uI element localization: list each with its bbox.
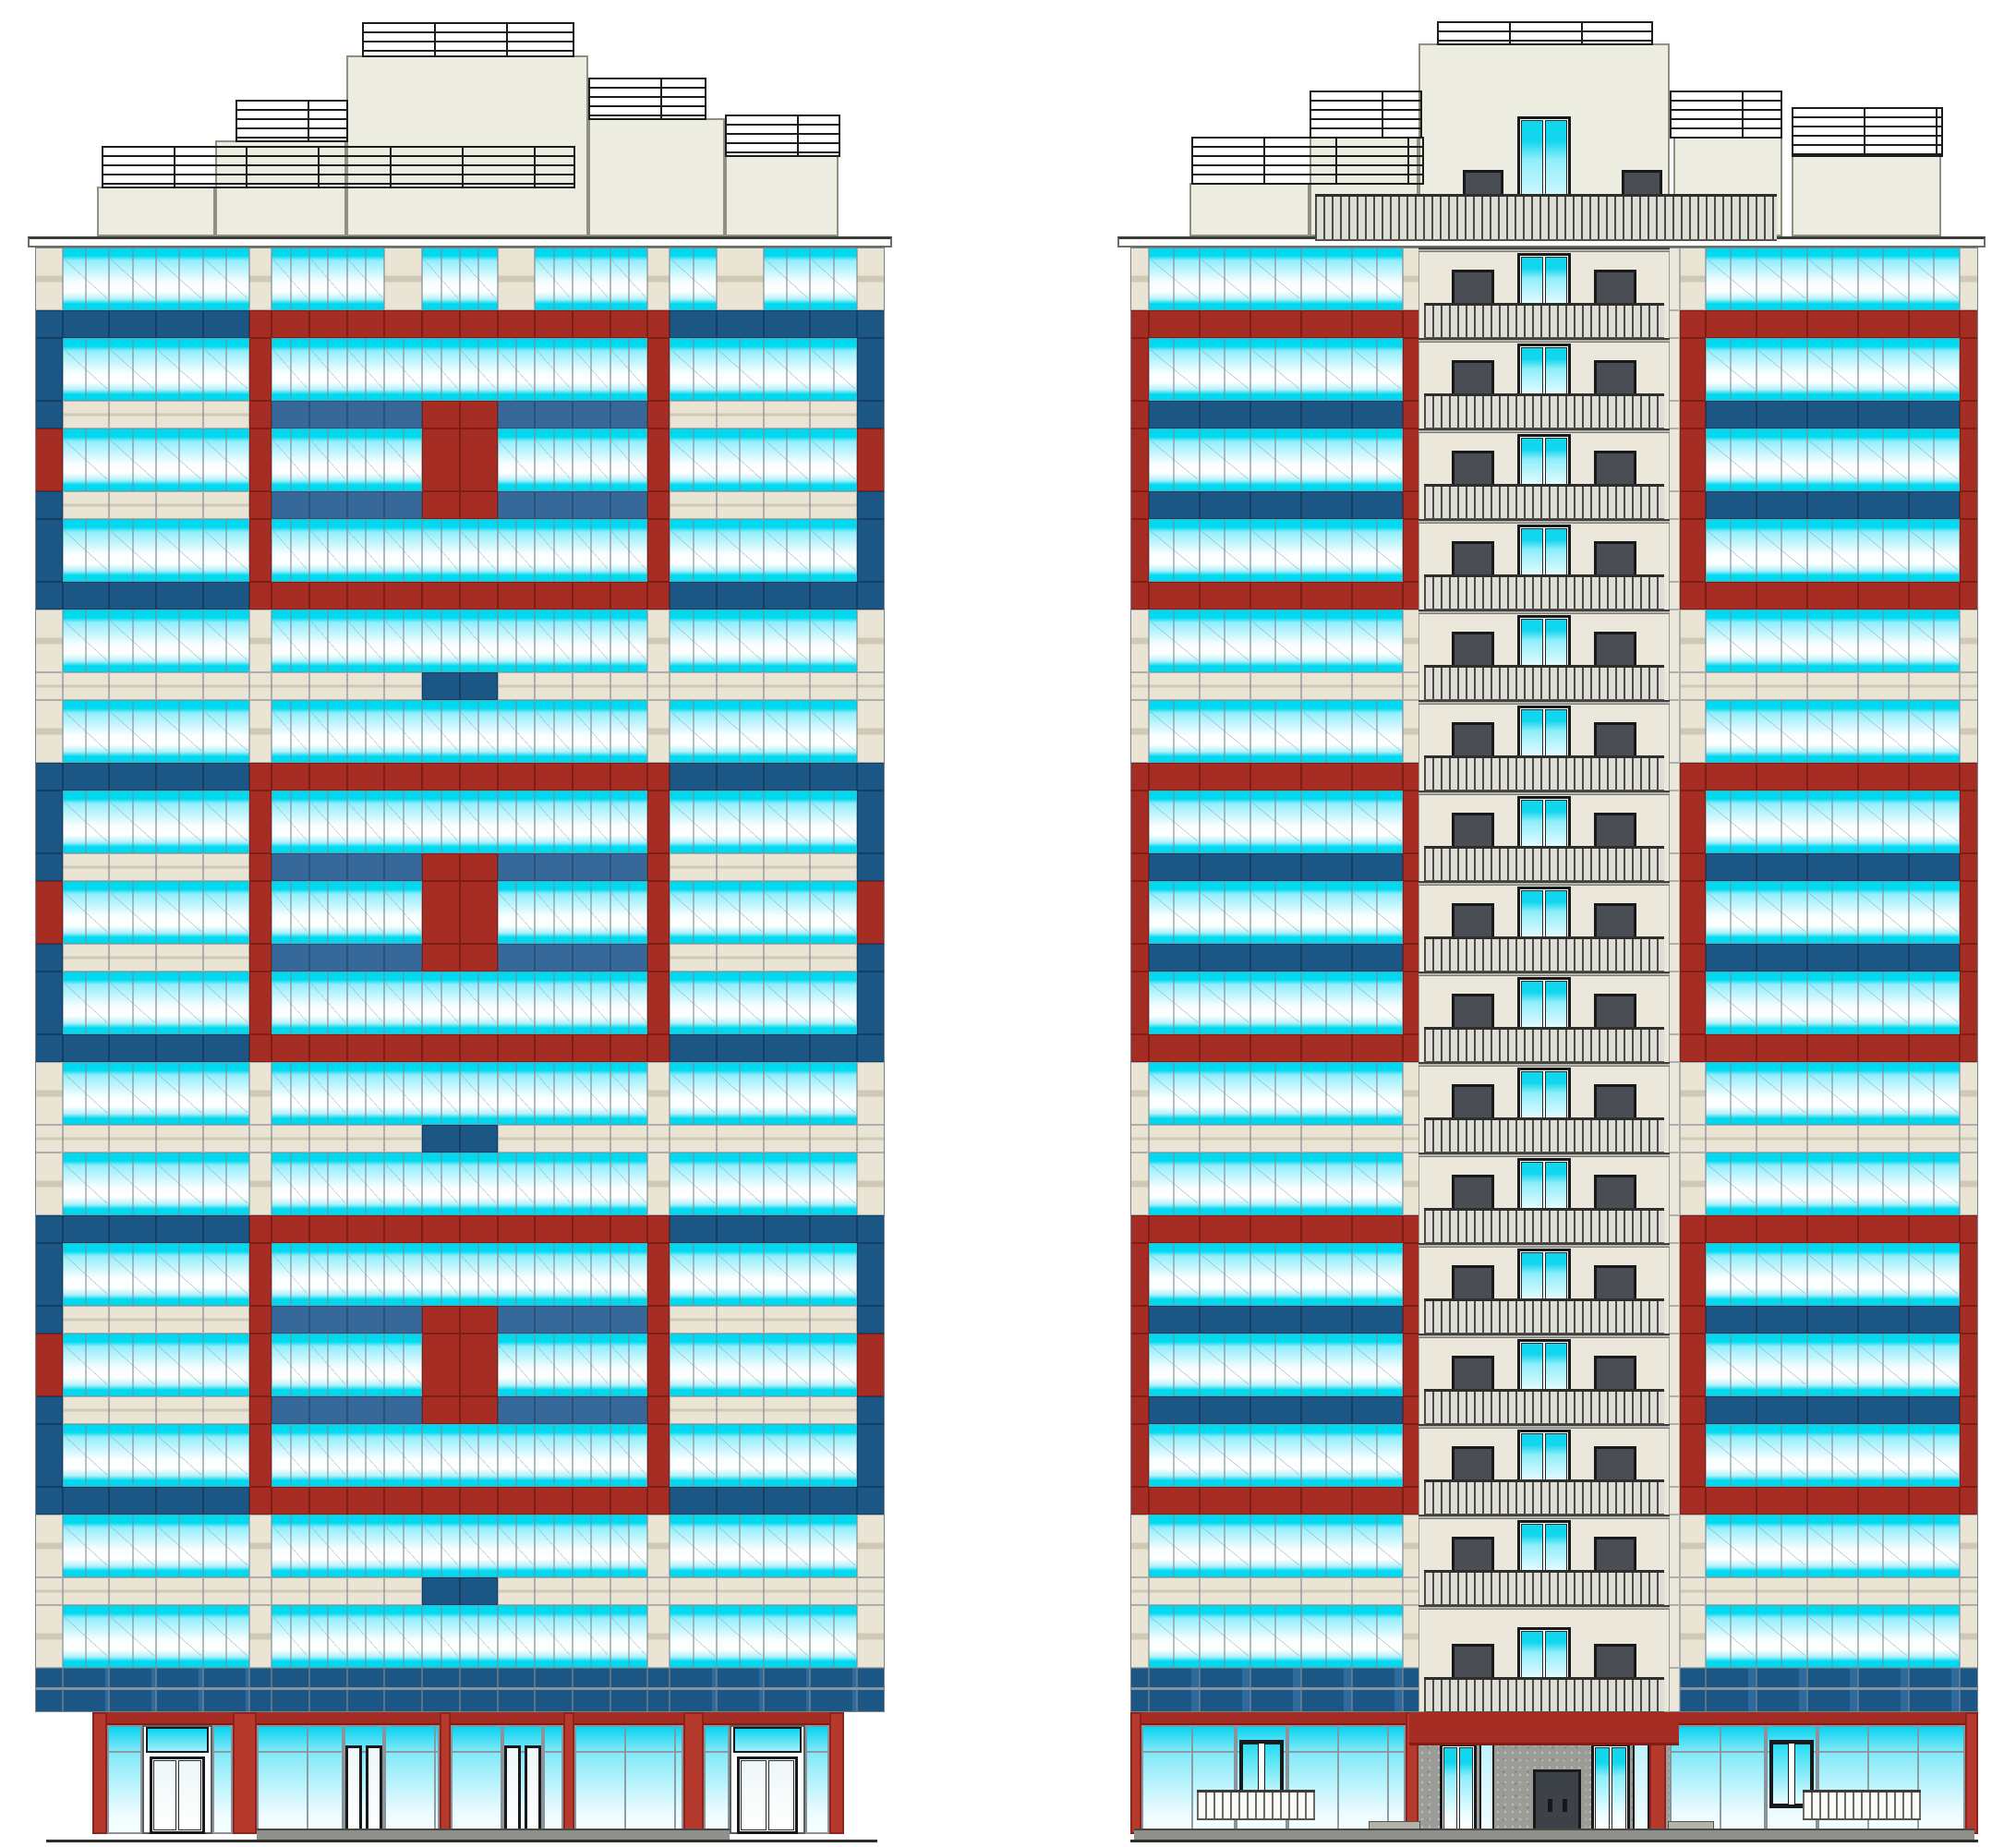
window-cell xyxy=(764,1243,811,1306)
cream-panel xyxy=(1250,1125,1301,1153)
navy-panel xyxy=(1756,944,1807,972)
red-panel xyxy=(647,881,670,944)
window-cell xyxy=(1756,1424,1807,1487)
window-cell xyxy=(1858,972,1909,1034)
window-cell xyxy=(1858,1062,1909,1125)
window-cell xyxy=(460,1605,498,1668)
cream-panel xyxy=(1680,1062,1706,1125)
window-cell xyxy=(764,1062,811,1125)
floor-slab xyxy=(1418,1424,1670,1429)
glazed-entrance-door xyxy=(1591,1744,1630,1834)
window-cell xyxy=(109,972,156,1034)
cream-panel xyxy=(63,1396,110,1424)
window-cell xyxy=(573,1605,610,1668)
window-cell xyxy=(670,1334,717,1396)
window-cell xyxy=(610,429,648,491)
cream-panel xyxy=(1149,1577,1200,1605)
window-cell xyxy=(63,1334,110,1396)
window-cell xyxy=(1250,881,1301,944)
facade-spandrel-row xyxy=(35,944,885,972)
balcony-railing xyxy=(1424,1479,1664,1515)
window-cell xyxy=(610,1153,648,1215)
navy-panel xyxy=(63,1034,110,1062)
window-cell xyxy=(764,881,811,944)
balcony-unit xyxy=(1418,791,1670,881)
cream-panel xyxy=(1807,672,1858,700)
cream-panel xyxy=(203,401,250,429)
window-cell xyxy=(272,1515,309,1577)
glazed-entrance-door xyxy=(1440,1744,1477,1834)
cream-panel xyxy=(63,853,110,881)
blue-spandrel xyxy=(535,1396,573,1424)
window-cell xyxy=(156,1153,203,1215)
cream-panel xyxy=(63,491,110,519)
window-cell xyxy=(156,1424,203,1487)
red-panel xyxy=(249,310,272,338)
window-cell xyxy=(717,1424,764,1487)
red-panel xyxy=(498,1034,536,1062)
window-cell xyxy=(498,610,536,672)
red-panel xyxy=(1807,1034,1858,1062)
window-cell xyxy=(109,1062,156,1125)
window-cell xyxy=(63,610,110,672)
window-cell xyxy=(1807,247,1858,310)
navy-panel xyxy=(156,1034,203,1062)
window-cell xyxy=(810,1243,857,1306)
navy-panel xyxy=(109,1034,156,1062)
window-cell xyxy=(1200,791,1250,853)
red-panel xyxy=(422,429,460,491)
window-cell xyxy=(1352,1424,1403,1487)
window-cell xyxy=(109,1424,156,1487)
window-cell xyxy=(1149,1062,1200,1125)
balcony-unit xyxy=(1418,610,1670,700)
entrance-transom xyxy=(146,1727,209,1753)
window-cell xyxy=(384,1605,422,1668)
facade-spandrel-row xyxy=(35,1577,885,1605)
red-panel xyxy=(1756,1215,1807,1243)
cream-panel xyxy=(1909,1125,1960,1153)
cream-panel xyxy=(670,1125,717,1153)
storefront-red-band xyxy=(1670,1712,1766,1725)
cream-panel xyxy=(203,1396,250,1424)
red-panel xyxy=(647,429,670,491)
window-cell xyxy=(1149,610,1200,672)
cream-panel xyxy=(35,1062,63,1125)
cream-panel xyxy=(249,1605,272,1668)
storefront-glass xyxy=(805,1725,829,1834)
red-panel xyxy=(610,763,648,791)
cream-panel xyxy=(1960,672,1978,700)
window-cell xyxy=(1149,338,1200,401)
roof-railing xyxy=(588,78,706,120)
navy-panel xyxy=(460,1577,498,1605)
balcony-railing xyxy=(1424,393,1664,429)
facade-spandrel-row xyxy=(35,763,885,791)
cream-panel xyxy=(249,672,272,700)
window-cell xyxy=(63,791,110,853)
red-panel xyxy=(1130,1396,1149,1424)
red-panel xyxy=(1250,582,1301,610)
window-cell xyxy=(203,429,250,491)
storefront-glass xyxy=(212,1725,233,1834)
red-panel xyxy=(1706,763,1756,791)
window-cell xyxy=(460,700,498,763)
window-cell xyxy=(764,791,811,853)
red-panel xyxy=(535,1034,573,1062)
window-cell xyxy=(422,1515,460,1577)
navy-panel xyxy=(1301,401,1352,429)
navy-panel xyxy=(1301,853,1352,881)
red-panel xyxy=(1149,582,1200,610)
cream-panel xyxy=(1706,672,1756,700)
navy-panel xyxy=(203,1034,250,1062)
red-panel xyxy=(1149,763,1200,791)
navy-panel xyxy=(203,1215,250,1243)
red-panel xyxy=(647,944,670,972)
red-panel xyxy=(1858,1215,1909,1243)
balcony-railing xyxy=(1424,1208,1664,1244)
window-cell xyxy=(1352,881,1403,944)
blue-spandrel xyxy=(309,944,347,972)
cream-panel xyxy=(1680,700,1706,763)
navy-panel xyxy=(857,401,885,429)
window-cell xyxy=(1807,1515,1858,1577)
window-cell xyxy=(309,1153,347,1215)
window-cell xyxy=(384,700,422,763)
red-panel xyxy=(1960,491,1978,519)
window-cell xyxy=(347,1062,385,1125)
cream-panel xyxy=(249,1125,272,1153)
red-panel xyxy=(460,491,498,519)
window-cell xyxy=(347,1334,385,1396)
window-cell xyxy=(1706,1062,1756,1125)
window-cell xyxy=(63,972,110,1034)
balcony-railing xyxy=(1424,1677,1664,1713)
cream-panel xyxy=(573,1577,610,1605)
window-cell xyxy=(109,700,156,763)
cream-panel xyxy=(764,401,811,429)
cream-panel xyxy=(35,610,63,672)
window-cell xyxy=(573,791,610,853)
window-cell xyxy=(1807,1605,1858,1668)
blue-spandrel xyxy=(384,401,422,429)
cream-panel xyxy=(498,1577,536,1605)
checker-band-cell xyxy=(347,1668,385,1712)
window-cell xyxy=(535,700,573,763)
cream-panel xyxy=(764,1577,811,1605)
cream-panel xyxy=(203,1577,250,1605)
red-panel xyxy=(1680,1396,1706,1424)
red-panel xyxy=(249,491,272,519)
navy-panel xyxy=(857,853,885,881)
window-cell xyxy=(1250,338,1301,401)
window-cell xyxy=(1149,519,1200,582)
cream-panel xyxy=(156,1306,203,1334)
checker-band-cell xyxy=(460,1668,498,1712)
storefront-glass xyxy=(574,1725,683,1834)
navy-panel xyxy=(717,1034,764,1062)
window-cell xyxy=(1250,1334,1301,1396)
blue-spandrel xyxy=(610,401,648,429)
blue-spandrel xyxy=(272,1306,309,1334)
cream-panel xyxy=(857,1577,885,1605)
roof-railing xyxy=(1310,91,1422,139)
window-cell xyxy=(810,791,857,853)
window-cell xyxy=(1250,1062,1301,1125)
window-cell xyxy=(1200,247,1250,310)
red-panel xyxy=(460,881,498,944)
red-panel xyxy=(610,310,648,338)
window-cell xyxy=(1909,1243,1960,1306)
red-panel xyxy=(1909,1034,1960,1062)
checker-band-cell xyxy=(1807,1668,1858,1712)
balcony-unit xyxy=(1418,1515,1670,1605)
window-cell xyxy=(1301,881,1352,944)
navy-panel xyxy=(857,763,885,791)
red-panel xyxy=(1680,310,1706,338)
navy-panel xyxy=(63,1487,110,1515)
blue-spandrel xyxy=(610,1306,648,1334)
floor-slab xyxy=(1418,247,1670,252)
navy-panel xyxy=(1250,1306,1301,1334)
cream-panel xyxy=(1130,610,1149,672)
navy-panel xyxy=(717,1215,764,1243)
red-panel xyxy=(535,310,573,338)
window-cell xyxy=(1807,338,1858,401)
red-panel xyxy=(272,1487,309,1515)
window-cell xyxy=(535,1243,573,1306)
balcony-unit xyxy=(1418,1153,1670,1243)
checker-band-cell xyxy=(1706,1668,1756,1712)
red-panel xyxy=(249,1034,272,1062)
window-cell xyxy=(498,429,536,491)
red-panel xyxy=(1130,338,1149,401)
navy-panel xyxy=(460,1125,498,1153)
navy-panel xyxy=(35,491,63,519)
window-cell xyxy=(670,429,717,491)
window-cell xyxy=(1858,610,1909,672)
window-cell xyxy=(460,610,498,672)
storefront-red-band xyxy=(805,1712,829,1725)
floor-slab xyxy=(1418,1062,1670,1067)
red-panel xyxy=(1960,763,1978,791)
cream-panel xyxy=(156,1577,203,1605)
window-cell xyxy=(109,1153,156,1215)
window-cell xyxy=(498,700,536,763)
window-cell xyxy=(1352,610,1403,672)
window-cell xyxy=(810,519,857,582)
window-cell xyxy=(156,338,203,401)
roof-penthouse-block xyxy=(725,155,839,236)
window-cell xyxy=(1858,1515,1909,1577)
navy-panel xyxy=(857,1215,885,1243)
navy-panel xyxy=(857,1243,885,1306)
window-cell xyxy=(610,972,648,1034)
red-panel xyxy=(498,1215,536,1243)
navy-panel xyxy=(109,310,156,338)
window-cell xyxy=(535,247,573,310)
red-panel xyxy=(1960,1424,1978,1487)
window-cell xyxy=(63,429,110,491)
window-cell xyxy=(460,338,498,401)
red-panel xyxy=(1960,1306,1978,1334)
window-cell xyxy=(1706,1605,1756,1668)
red-panel xyxy=(272,763,309,791)
window-cell xyxy=(1301,610,1352,672)
window-cell xyxy=(203,1515,250,1577)
cream-panel xyxy=(1807,1577,1858,1605)
window-cell xyxy=(1909,1515,1960,1577)
cream-panel xyxy=(764,672,811,700)
storefront-red-band xyxy=(704,1712,730,1725)
navy-panel xyxy=(1756,491,1807,519)
window-cell xyxy=(535,519,573,582)
window-cell xyxy=(156,1243,203,1306)
navy-panel xyxy=(764,1215,811,1243)
red-panel xyxy=(1807,763,1858,791)
facade-window-row xyxy=(35,247,885,310)
window-cell xyxy=(1301,1334,1352,1396)
window-cell xyxy=(460,1424,498,1487)
red-panel xyxy=(1909,1215,1960,1243)
cream-panel xyxy=(109,853,156,881)
navy-panel xyxy=(1706,1306,1756,1334)
cream-panel xyxy=(717,247,764,310)
window-cell xyxy=(384,519,422,582)
blue-spandrel xyxy=(498,1396,536,1424)
window-cell xyxy=(573,429,610,491)
checker-band-cell xyxy=(670,1668,717,1712)
window-cell xyxy=(670,1605,717,1668)
red-panel xyxy=(422,491,460,519)
cream-panel xyxy=(717,1125,764,1153)
red-panel xyxy=(347,582,385,610)
red-panel xyxy=(309,763,347,791)
window-cell xyxy=(717,791,764,853)
red-panel xyxy=(422,881,460,944)
checker-band-cell xyxy=(1756,1668,1807,1712)
window-cell xyxy=(1909,519,1960,582)
cream-panel xyxy=(717,401,764,429)
blue-spandrel xyxy=(347,853,385,881)
blue-spandrel xyxy=(610,1396,648,1424)
floor-slab xyxy=(1418,1515,1670,1519)
cream-panel xyxy=(647,700,670,763)
navy-panel xyxy=(857,519,885,582)
cream-panel xyxy=(857,1062,885,1125)
red-panel xyxy=(1680,1243,1706,1306)
window-cell xyxy=(1200,881,1250,944)
window-cell xyxy=(573,1424,610,1487)
window-cell xyxy=(1858,1424,1909,1487)
navy-panel xyxy=(717,1487,764,1515)
blue-spandrel xyxy=(347,401,385,429)
window-cell xyxy=(422,338,460,401)
window-cell xyxy=(1352,1243,1403,1306)
red-panel xyxy=(249,401,272,429)
window-cell xyxy=(1149,700,1200,763)
window-cell xyxy=(764,1424,811,1487)
red-panel xyxy=(347,1487,385,1515)
balcony-railing xyxy=(1424,665,1664,701)
checker-band-cell xyxy=(309,1668,347,1712)
cream-panel xyxy=(1250,1577,1301,1605)
window-cell xyxy=(309,700,347,763)
red-panel xyxy=(347,1215,385,1243)
red-panel xyxy=(1680,791,1706,853)
storefront-red-band xyxy=(344,1712,384,1725)
cream-panel xyxy=(670,853,717,881)
cream-panel xyxy=(670,672,717,700)
cream-panel xyxy=(1352,1125,1403,1153)
storefront-glass xyxy=(451,1725,502,1834)
navy-panel xyxy=(764,1487,811,1515)
window-cell xyxy=(535,1062,573,1125)
window-cell xyxy=(1807,1334,1858,1396)
balcony-railing xyxy=(1424,846,1664,882)
cream-panel xyxy=(156,1125,203,1153)
cream-panel xyxy=(1680,1577,1706,1605)
window-cell xyxy=(610,338,648,401)
window-cell xyxy=(1909,338,1960,401)
window-cell xyxy=(63,1062,110,1125)
navy-panel xyxy=(109,582,156,610)
blue-spandrel xyxy=(573,1306,610,1334)
red-panel xyxy=(422,944,460,972)
window-cell xyxy=(460,519,498,582)
red-panel xyxy=(1200,582,1250,610)
window-cell xyxy=(384,1062,422,1125)
red-panel xyxy=(1706,582,1756,610)
red-panel xyxy=(1130,944,1149,972)
storefront-red-band xyxy=(1236,1712,1287,1725)
window-cell xyxy=(764,429,811,491)
navy-panel xyxy=(1756,853,1807,881)
red-panel xyxy=(1200,1487,1250,1515)
balcony-railing xyxy=(1424,1027,1664,1063)
red-panel xyxy=(1130,1034,1149,1062)
red-panel xyxy=(1352,582,1403,610)
red-panel xyxy=(857,429,885,491)
red-panel xyxy=(1130,1424,1149,1487)
window-cell xyxy=(1352,1334,1403,1396)
navy-panel xyxy=(35,944,63,972)
navy-panel xyxy=(35,338,63,401)
cream-panel xyxy=(1680,247,1706,310)
navy-panel xyxy=(1149,1306,1200,1334)
cream-panel xyxy=(1301,1125,1352,1153)
blue-spandrel xyxy=(498,491,536,519)
navy-panel xyxy=(156,1215,203,1243)
checker-band-cell xyxy=(1680,1668,1706,1712)
window-cell xyxy=(810,247,857,310)
red-panel xyxy=(384,1034,422,1062)
red-panel xyxy=(647,972,670,1034)
door-handle xyxy=(1548,1799,1552,1812)
navy-panel xyxy=(670,1215,717,1243)
red-panel xyxy=(647,401,670,429)
window-cell xyxy=(272,247,309,310)
blue-spandrel xyxy=(384,1306,422,1334)
cream-panel xyxy=(764,1306,811,1334)
red-panel xyxy=(1680,881,1706,944)
window-cell xyxy=(1807,881,1858,944)
window-cell xyxy=(498,1062,536,1125)
window-cell xyxy=(1250,1243,1301,1306)
red-panel xyxy=(272,582,309,610)
navy-panel xyxy=(156,582,203,610)
